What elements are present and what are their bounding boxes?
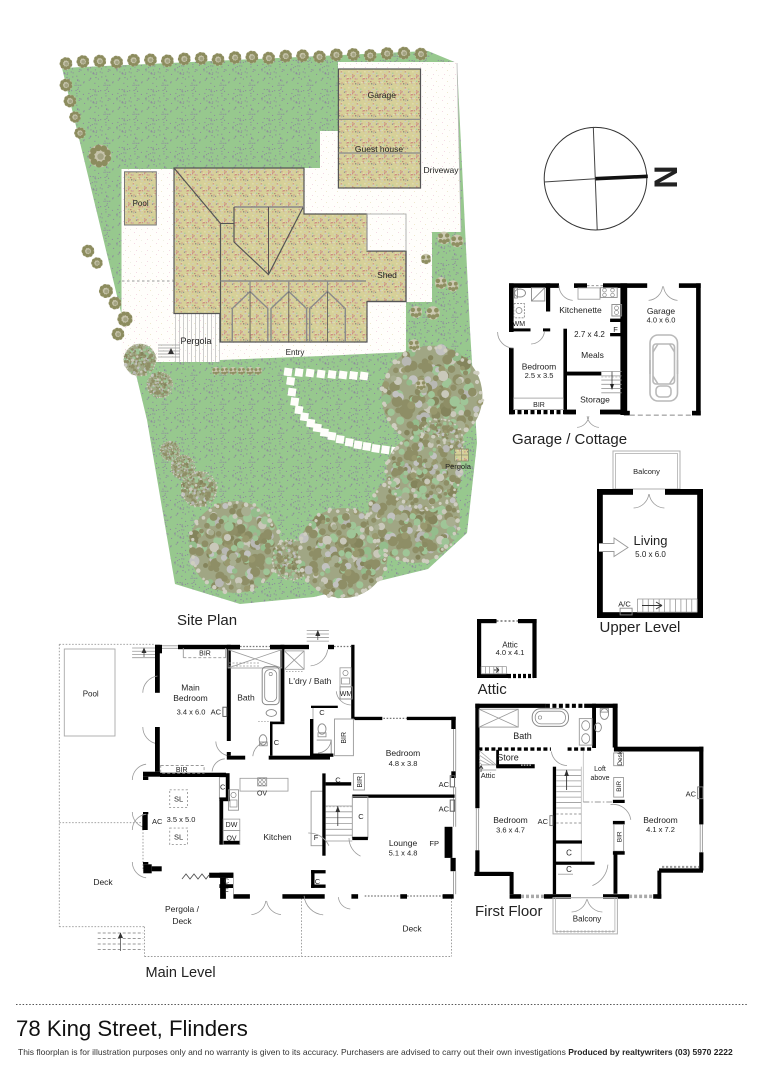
svg-text:above: above: [590, 775, 609, 782]
svg-text:BIR: BIR: [176, 767, 188, 774]
svg-text:C: C: [274, 738, 280, 747]
svg-text:3.5 x 5.0: 3.5 x 5.0: [167, 815, 196, 824]
svg-text:WM: WM: [340, 691, 353, 698]
svg-text:C: C: [566, 865, 572, 874]
svg-text:Driveway: Driveway: [424, 165, 460, 175]
svg-text:This floorplan is for illustra: This floorplan is for illustration purpo…: [18, 1047, 733, 1057]
svg-text:4.0 x 6.0: 4.0 x 6.0: [647, 316, 676, 325]
svg-text:Upper Level: Upper Level: [600, 619, 681, 636]
svg-text:Balcony: Balcony: [573, 915, 601, 924]
svg-text:Balcony: Balcony: [633, 467, 660, 476]
svg-text:BIR: BIR: [357, 776, 364, 788]
svg-text:Pergola: Pergola: [180, 336, 211, 346]
svg-text:L'dry / Bath: L'dry / Bath: [289, 676, 332, 686]
svg-text:4.1 x 7.2: 4.1 x 7.2: [646, 825, 675, 834]
svg-text:Guest house: Guest house: [355, 144, 403, 154]
svg-text:Lounge: Lounge: [389, 838, 418, 848]
svg-text:Storage: Storage: [580, 395, 610, 405]
svg-text:3.4 x 6.0: 3.4 x 6.0: [177, 708, 206, 717]
svg-text:Desk: Desk: [617, 750, 624, 766]
svg-text:C: C: [315, 877, 321, 886]
svg-text:C: C: [224, 879, 229, 886]
svg-text:SL: SL: [174, 833, 183, 842]
svg-text:2.5 x 3.5: 2.5 x 3.5: [525, 371, 554, 380]
svg-text:Meals: Meals: [581, 350, 604, 360]
svg-text:FP: FP: [429, 839, 439, 848]
svg-text:AC: AC: [211, 708, 222, 717]
svg-text:OV: OV: [257, 791, 267, 798]
svg-text:Attic: Attic: [481, 771, 496, 780]
svg-text:2.7 x 4.2: 2.7 x 4.2: [574, 330, 605, 339]
svg-text:Shed: Shed: [377, 270, 397, 280]
svg-text:BIR: BIR: [199, 651, 211, 658]
svg-text:Main Level: Main Level: [146, 965, 216, 981]
svg-text:Attic: Attic: [478, 681, 508, 698]
svg-text:Loft: Loft: [594, 766, 606, 773]
svg-text:Site Plan: Site Plan: [177, 612, 237, 629]
svg-text:Living: Living: [634, 533, 668, 548]
svg-text:A/C: A/C: [618, 600, 631, 609]
svg-text:BIR: BIR: [617, 831, 624, 842]
svg-text:Bath: Bath: [237, 693, 255, 703]
svg-text:Kitchen: Kitchen: [263, 832, 292, 842]
svg-text:5.0 x 6.0: 5.0 x 6.0: [635, 550, 666, 559]
svg-text:DW: DW: [226, 822, 238, 829]
svg-text:Entry: Entry: [286, 348, 305, 357]
svg-text:OV: OV: [226, 836, 236, 843]
svg-text:Pergola /: Pergola /: [165, 904, 200, 914]
svg-text:C: C: [566, 849, 572, 858]
svg-text:Garage / Cottage: Garage / Cottage: [512, 431, 627, 448]
svg-text:Store: Store: [497, 753, 519, 763]
svg-text:Kitchenette: Kitchenette: [559, 305, 602, 315]
svg-text:Deck: Deck: [172, 916, 192, 926]
svg-text:C: C: [319, 708, 325, 717]
svg-text:Pool: Pool: [133, 199, 149, 208]
svg-text:WM: WM: [513, 321, 526, 328]
svg-text:BIR: BIR: [533, 402, 545, 409]
svg-text:4.0 x 4.1: 4.0 x 4.1: [496, 648, 525, 657]
svg-text:Pool: Pool: [83, 690, 99, 699]
svg-text:AC: AC: [152, 817, 163, 826]
svg-text:N: N: [648, 165, 684, 188]
svg-text:BIR: BIR: [341, 732, 348, 744]
svg-text:First Floor: First Floor: [475, 903, 543, 920]
svg-text:AC: AC: [439, 780, 450, 789]
svg-text:Deck: Deck: [402, 924, 422, 934]
svg-text:AC: AC: [686, 790, 697, 799]
svg-text:Bedroom: Bedroom: [643, 815, 678, 825]
svg-text:Garage: Garage: [647, 306, 676, 316]
svg-text:BIR: BIR: [616, 781, 623, 792]
svg-text:F: F: [613, 325, 618, 334]
svg-text:F: F: [224, 889, 228, 896]
svg-text:AC: AC: [538, 817, 549, 826]
svg-text:Bedroom: Bedroom: [522, 362, 557, 372]
svg-text:C: C: [220, 783, 226, 792]
svg-text:SL: SL: [174, 795, 183, 804]
svg-text:Garage: Garage: [368, 90, 397, 100]
svg-text:Bath: Bath: [513, 731, 532, 741]
svg-text:4.8 x 3.8: 4.8 x 3.8: [389, 759, 418, 768]
svg-text:Bedroom: Bedroom: [386, 748, 421, 758]
svg-text:3.6 x 4.7: 3.6 x 4.7: [496, 826, 525, 835]
svg-text:Deck: Deck: [93, 877, 113, 887]
svg-text:Pergola: Pergola: [445, 462, 472, 471]
svg-text:AC: AC: [439, 805, 450, 814]
svg-text:Bedroom: Bedroom: [493, 815, 528, 825]
svg-text:78 King Street, Flinders: 78 King Street, Flinders: [16, 1016, 248, 1041]
svg-text:C: C: [358, 812, 364, 821]
svg-text:Bedroom: Bedroom: [173, 693, 208, 703]
svg-text:5.1 x 4.8: 5.1 x 4.8: [389, 849, 418, 858]
svg-text:Main: Main: [181, 683, 200, 693]
